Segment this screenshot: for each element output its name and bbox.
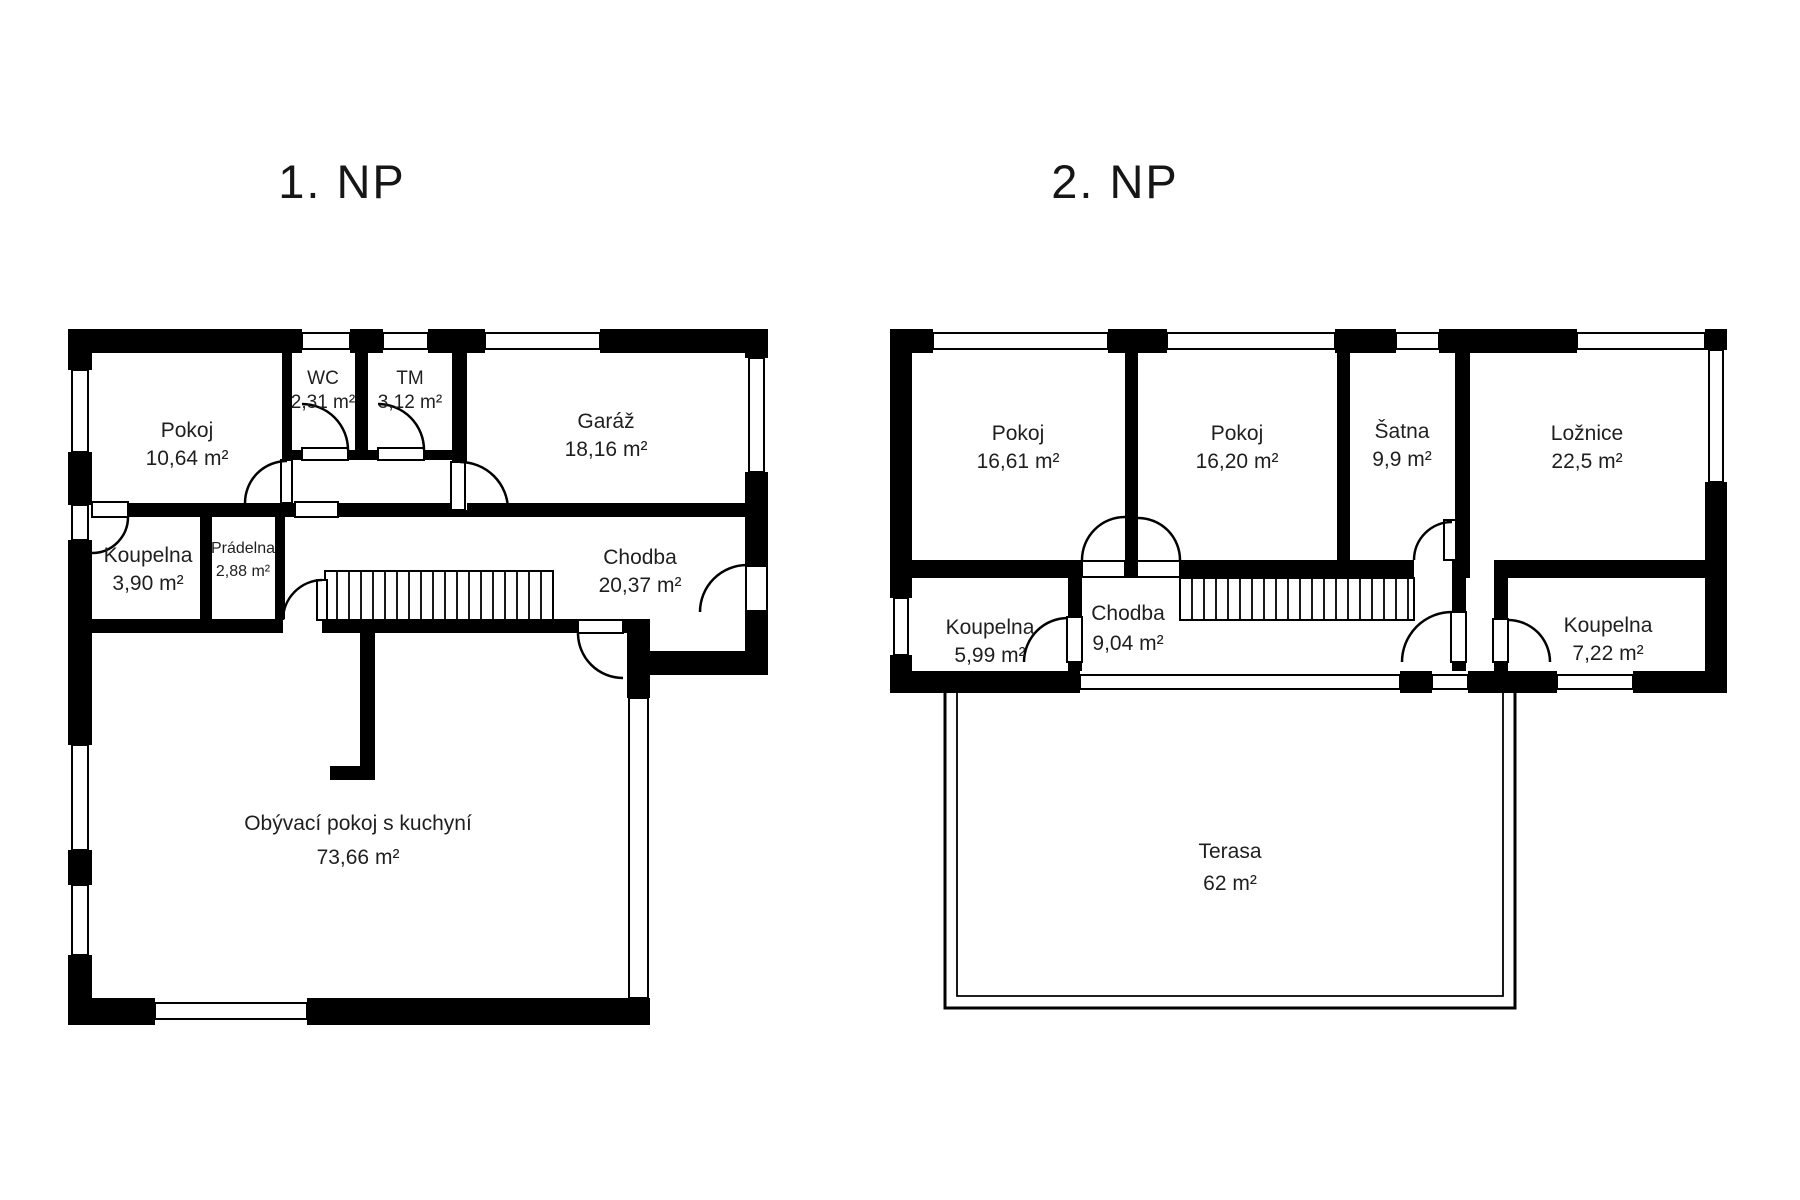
svg-text:3,90 m²: 3,90 m²: [112, 572, 183, 595]
svg-text:16,61 m²: 16,61 m²: [977, 450, 1060, 473]
stairs-1np: [325, 571, 553, 620]
room-label-satna: Šatna 9,9 m²: [1372, 420, 1432, 471]
room-label-chodba-1np: Chodba 20,37 m²: [599, 546, 682, 597]
svg-text:Prádelna: Prádelna: [211, 540, 275, 557]
room-label-pokoj-1np: Pokoj 10,64 m²: [146, 419, 229, 470]
svg-text:3,12 m²: 3,12 m²: [378, 392, 442, 413]
svg-text:10,64 m²: 10,64 m²: [146, 447, 229, 470]
svg-text:TM: TM: [396, 368, 423, 389]
svg-text:5,99 m²: 5,99 m²: [954, 644, 1025, 667]
pokoj1-door: [1082, 561, 1125, 577]
wc-door: [302, 448, 348, 460]
room-label-pradelna: Prádelna 2,88 m²: [211, 540, 275, 580]
svg-text:WC: WC: [307, 368, 339, 389]
svg-text:Ložnice: Ložnice: [1551, 422, 1623, 445]
room-label-pokoj1-2np: Pokoj 16,61 m²: [977, 422, 1060, 473]
svg-text:Koupelna: Koupelna: [104, 544, 193, 567]
svg-text:Chodba: Chodba: [603, 546, 677, 569]
koupelna2-door: [1493, 619, 1508, 662]
svg-text:Garáž: Garáž: [577, 410, 634, 433]
svg-text:20,37 m²: 20,37 m²: [599, 574, 682, 597]
svg-text:7,22 m²: 7,22 m²: [1572, 642, 1643, 665]
svg-text:2,88 m²: 2,88 m²: [216, 563, 271, 580]
svg-text:9,9 m²: 9,9 m²: [1372, 448, 1432, 471]
svg-text:Pokoj: Pokoj: [992, 422, 1045, 445]
svg-text:16,20 m²: 16,20 m²: [1196, 450, 1279, 473]
svg-text:22,5 m²: 22,5 m²: [1551, 450, 1622, 473]
room-label-koupelna-1np: Koupelna 3,90 m²: [104, 544, 193, 595]
room-label-terasa: Terasa 62 m²: [1198, 840, 1261, 895]
koupelna3-door: [1067, 617, 1082, 662]
svg-text:18,16 m²: 18,16 m²: [565, 438, 648, 461]
svg-text:73,66 m²: 73,66 m²: [317, 846, 400, 869]
room-label-loznice: Ložnice 22,5 m²: [1551, 422, 1623, 473]
floorplan-canvas: 1. NP: [0, 0, 1800, 1200]
pokoj2-door: [1137, 561, 1180, 577]
svg-text:9,04 m²: 9,04 m²: [1092, 632, 1163, 655]
pokoj-door: [281, 460, 292, 503]
floorplan-page: 1. NP: [0, 0, 1800, 1200]
chodba-door: [1451, 612, 1466, 662]
svg-text:Terasa: Terasa: [1198, 840, 1261, 863]
room-label-pokoj2-2np: Pokoj 16,20 m²: [1196, 422, 1279, 473]
room-labels-2np: Pokoj 16,61 m² Pokoj 16,20 m² Šatna 9,9 …: [946, 420, 1653, 895]
svg-text:2,31 m²: 2,31 m²: [291, 392, 355, 413]
floor-plan-1np: 1. NP: [68, 155, 768, 1025]
svg-text:Koupelna: Koupelna: [1564, 614, 1653, 637]
svg-text:62 m²: 62 m²: [1203, 872, 1257, 895]
svg-text:Pokoj: Pokoj: [1211, 422, 1264, 445]
room-label-koupelna-2np-left: Koupelna 5,99 m²: [946, 616, 1035, 667]
svg-text:Chodba: Chodba: [1091, 602, 1165, 625]
hall-passage: [295, 502, 338, 517]
garage-door: [451, 462, 465, 510]
svg-text:Šatna: Šatna: [1375, 420, 1430, 443]
svg-text:Koupelna: Koupelna: [946, 616, 1035, 639]
satna-door: [1444, 520, 1456, 560]
room-label-tm: TM 3,12 m²: [378, 368, 442, 413]
stairs-2np: [1180, 578, 1414, 620]
svg-text:Pokoj: Pokoj: [161, 419, 214, 442]
svg-text:Obývací pokoj s kuchyní: Obývací pokoj s kuchyní: [244, 812, 472, 835]
doors-1np: [92, 404, 767, 678]
living-door: [578, 620, 623, 633]
floor-title-1np: 1. NP: [278, 155, 406, 208]
entrance-door: [746, 566, 767, 611]
tm-door: [378, 448, 424, 460]
room-label-wc: WC 2,31 m²: [291, 368, 355, 413]
room-label-obyvaci: Obývací pokoj s kuchyní 73,66 m²: [244, 812, 472, 869]
stairfoot-door: [317, 580, 327, 620]
floor-title-2np: 2. NP: [1051, 155, 1179, 208]
koupelna1-door: [92, 502, 128, 517]
room-label-garaz: Garáž 18,16 m²: [565, 410, 648, 461]
room-label-koupelna-2np-right: Koupelna 7,22 m²: [1564, 614, 1653, 665]
room-label-chodba-2np: Chodba 9,04 m²: [1091, 602, 1165, 655]
floor-plan-2np: 2. NP: [890, 155, 1727, 1008]
